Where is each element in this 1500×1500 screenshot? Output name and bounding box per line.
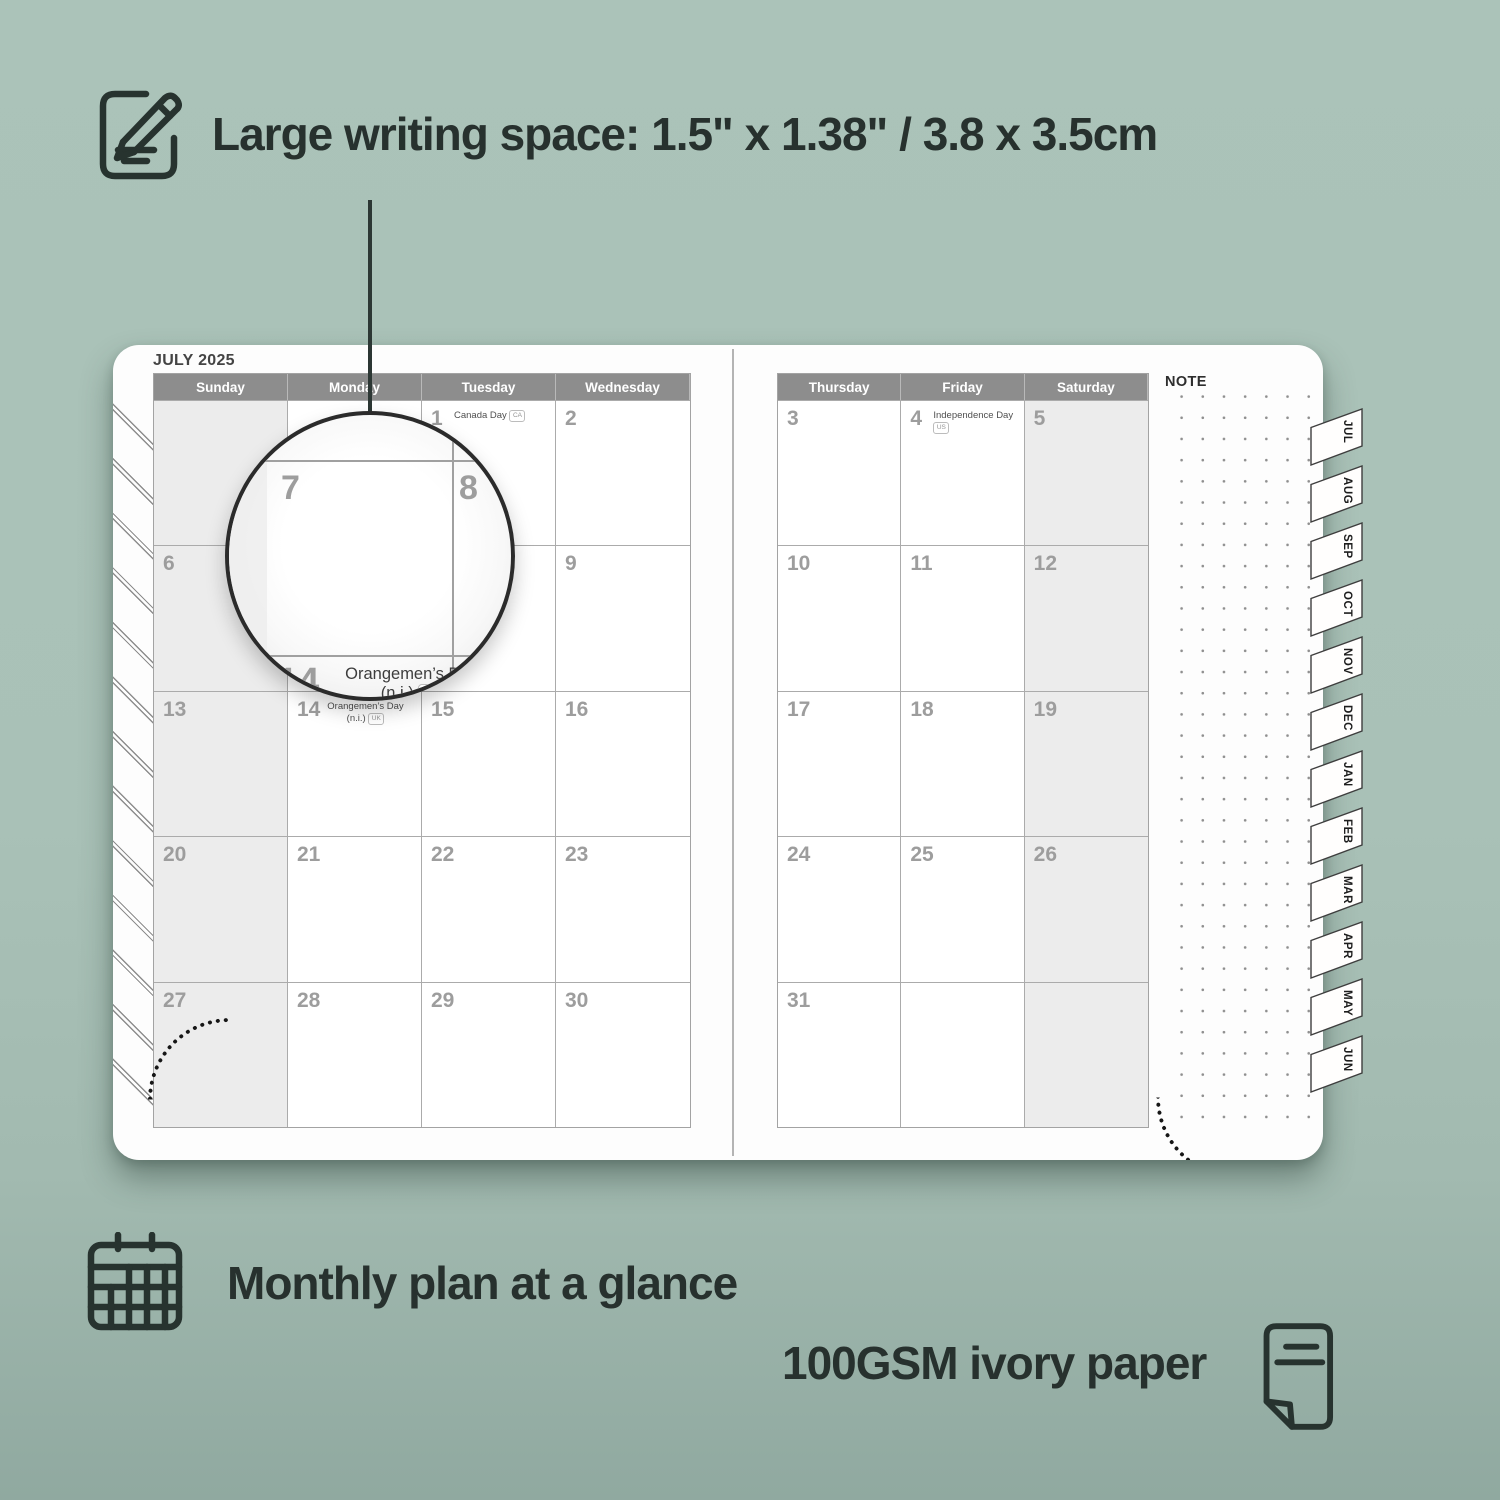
day-number: 13 [163,699,186,720]
day-cell: 29 [422,982,556,1127]
day-number: 24 [787,844,810,865]
note-area: NOTE [1163,374,1311,1125]
day-cell: 9 [556,545,690,690]
day-header: Sunday [154,374,288,400]
month-tab [1311,865,1362,921]
day-cell: 5 [1025,400,1148,545]
day-cell: 23 [556,836,690,981]
month-tab [1311,1036,1362,1092]
day-number: 30 [565,990,588,1011]
day-header: Friday [901,374,1024,400]
holiday-badge: UK [368,713,384,725]
month-tab-label: JAN [1341,762,1353,787]
holiday-label: Orangemen’s Day(n.i.) UK [314,701,417,726]
pointer-line [368,200,372,428]
month-tab [1311,523,1362,579]
day-number: 21 [297,844,320,865]
day-number: 26 [1034,844,1057,865]
month-tab-label: NOV [1341,648,1353,675]
day-number: 2 [565,408,577,429]
day-number: 16 [565,699,588,720]
calendar-grid-icon [85,1232,185,1334]
month-tab [1311,922,1362,978]
holiday-label: Canada Day CA [454,410,551,422]
month-title: JULY 2025 [153,352,235,370]
day-number: 27 [163,990,186,1011]
day-cell: 16 [556,691,690,836]
holiday-label: Independence Day US [933,410,1019,435]
month-tab [1311,637,1362,693]
day-number: 10 [787,553,810,574]
month-tab-label: JUN [1341,1047,1353,1072]
note-label: NOTE [1163,374,1213,392]
day-number: 4 [910,408,922,429]
magnified-holiday-line1: Orangemen’s Day [345,665,478,683]
magnified-day-7: 7 [281,471,300,505]
left-page-tab-edges [113,396,156,1113]
day-number: 22 [431,844,454,865]
writing-space-caption: Large writing space: 1.5" x 1.38" / 3.8 … [212,107,1157,161]
month-tab [1311,808,1362,864]
month-tab-label: APR [1341,933,1353,959]
day-cell [901,982,1024,1127]
month-tab [1311,409,1362,465]
month-tab [1311,979,1362,1035]
day-header: Wednesday [556,374,690,400]
month-tab [1311,580,1362,636]
day-number: 5 [1034,408,1046,429]
day-cell: 20 [154,836,288,981]
day-number: 20 [163,844,186,865]
day-cell: 11 [901,545,1024,690]
day-number: 25 [910,844,933,865]
month-tab-label: MAY [1341,990,1353,1016]
day-number: 11 [910,553,932,574]
day-cell: 14Orangemen’s Day(n.i.) UK [288,691,422,836]
day-cell: 13 [154,691,288,836]
magnified-grid-line [229,655,511,657]
day-cell: 12 [1025,545,1148,690]
magnified-holiday-label: Orangemen’s Day (n.i.) UK [324,665,499,701]
day-cell: 22 [422,836,556,981]
day-number: 9 [565,553,577,574]
day-cell: 25 [901,836,1024,981]
day-number: 15 [431,699,454,720]
holiday-badge: CA [509,410,525,422]
monthly-plan-caption: Monthly plan at a glance [227,1256,737,1310]
month-tab-label: FEB [1341,819,1353,844]
day-number: 18 [910,699,933,720]
notebook-spine [732,349,734,1156]
month-tabs: JULAUGSEPOCTNOVDECJANFEBMARAPRMAYJUN [1310,408,1364,1112]
month-tab-label: OCT [1341,591,1353,617]
day-number: 17 [787,699,810,720]
day-cell: 19 [1025,691,1148,836]
day-header: Monday [288,374,422,400]
planner-product-image: Large writing space: 1.5" x 1.38" / 3.8 … [0,0,1500,1500]
day-number: 19 [1034,699,1057,720]
day-header: Tuesday [422,374,556,400]
day-cell: 10 [778,545,901,690]
day-cell: 24 [778,836,901,981]
day-cell [1025,982,1148,1127]
day-number: 31 [787,990,810,1011]
day-number: 3 [787,408,799,429]
day-header: Saturday [1025,374,1148,400]
feature-monthly-plan: Monthly plan at a glance [85,1232,737,1334]
feature-paper: 100GSM ivory paper [782,1322,1334,1432]
day-cell: 18 [901,691,1024,836]
day-cell: 17 [778,691,901,836]
month-tab-label: JUL [1341,420,1353,444]
day-cell: 3 [778,400,901,545]
notepad-pencil-icon [90,82,190,186]
day-cell: 26 [1025,836,1148,981]
day-number: 6 [163,553,175,574]
magnified-grid-line [229,460,511,462]
month-tab [1311,751,1362,807]
day-cell: 4Independence Day US [901,400,1024,545]
magnified-day-8: 8 [459,471,478,505]
paper-caption: 100GSM ivory paper [782,1336,1206,1390]
day-header: Thursday [778,374,901,400]
day-cell: 2 [556,400,690,545]
month-tab [1311,466,1362,522]
magnified-grid-line [452,415,454,697]
day-number: 23 [565,844,588,865]
day-cell: 30 [556,982,690,1127]
calendar-right-page: ThursdayFridaySaturday34Independence Day… [777,373,1149,1128]
month-tab [1311,694,1362,750]
feature-writing-space: Large writing space: 1.5" x 1.38" / 3.8 … [90,82,1157,186]
day-number: 28 [297,990,320,1011]
day-number: 12 [1034,553,1057,574]
magnified-day-14: 14 [277,663,319,701]
paper-sheet-icon [1246,1322,1334,1432]
month-tab-label: DEC [1341,705,1353,731]
dot-grid [1165,380,1311,1119]
month-tab-label: MAR [1341,876,1353,904]
day-cell: 15 [422,691,556,836]
holiday-badge: US [933,422,949,434]
day-number: 29 [431,990,454,1011]
day-cell: 21 [288,836,422,981]
magnifier-circle: 7 8 14 Orangemen’s Day (n.i.) UK [225,411,515,701]
month-tab-label: SEP [1341,534,1353,559]
day-cell: 31 [778,982,901,1127]
month-tab-label: AUG [1341,477,1353,504]
